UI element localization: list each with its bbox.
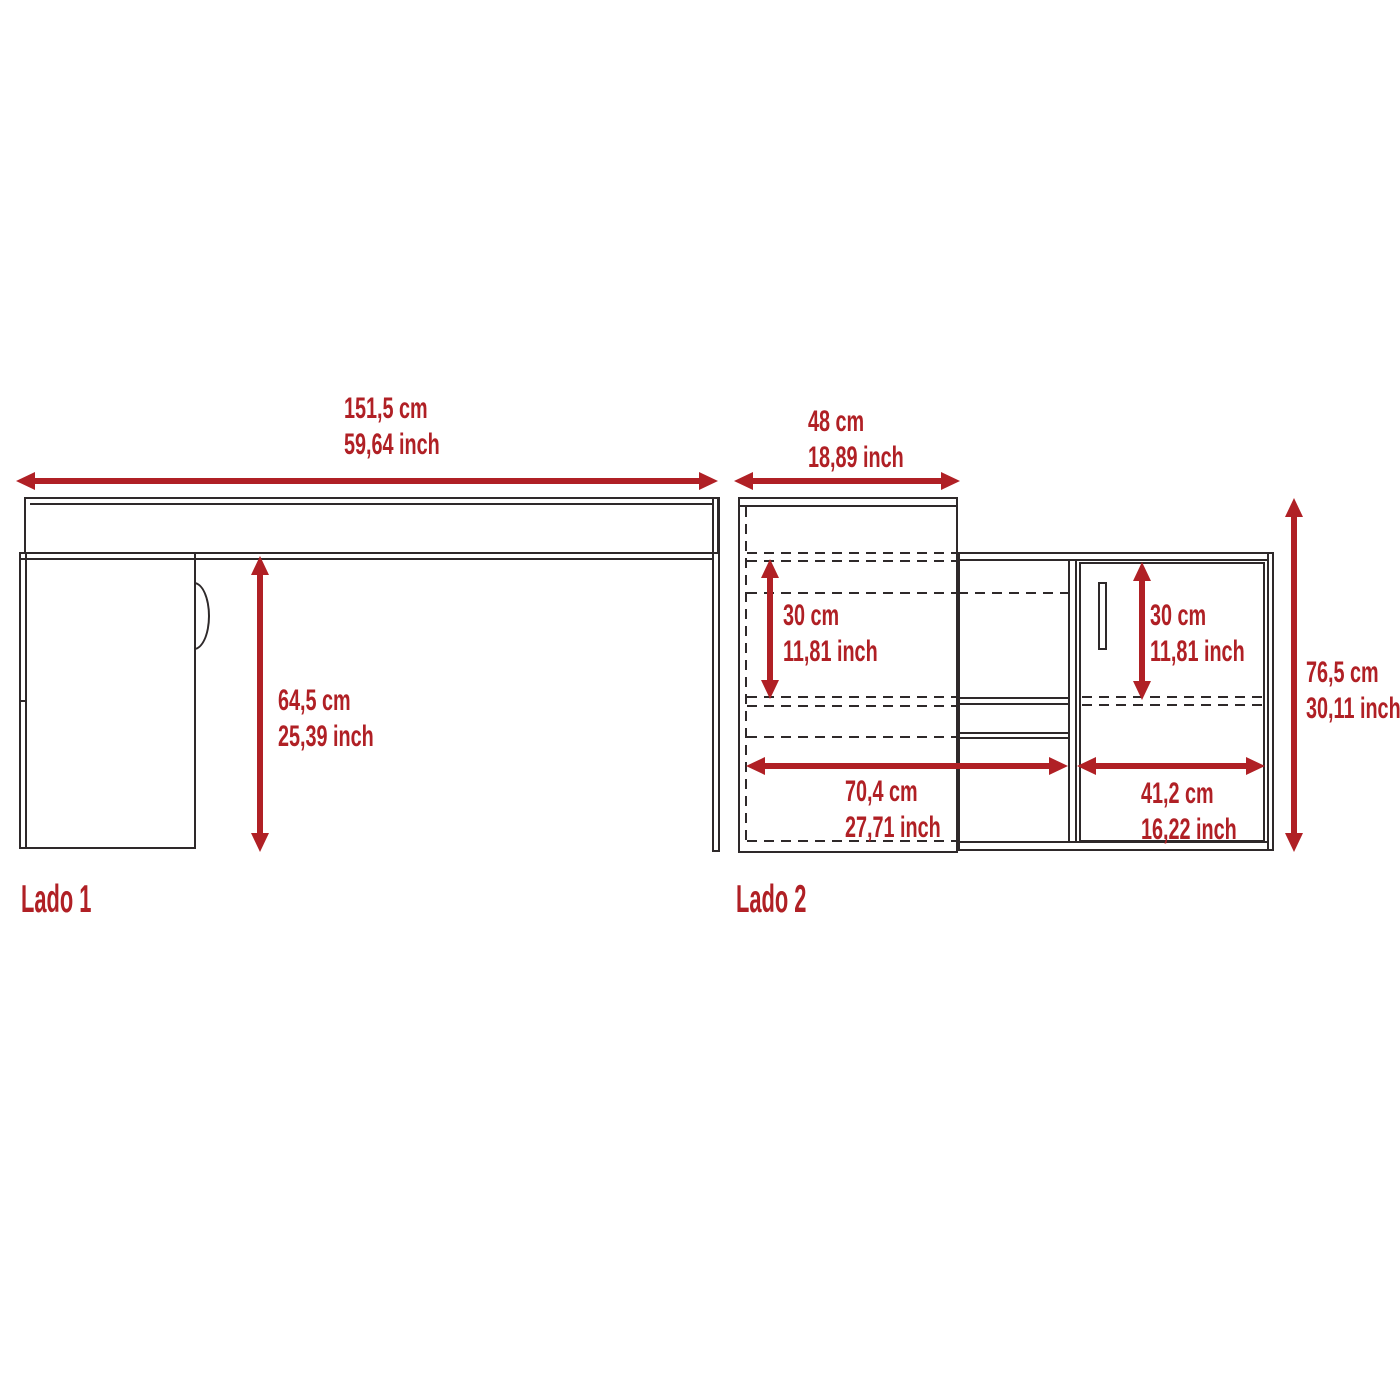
hidden-edge-dashed-vertical bbox=[745, 507, 747, 843]
desk-side-panel bbox=[712, 497, 720, 852]
dim-value-inch: 27,71 inch bbox=[845, 810, 941, 846]
dim-label-lado2-door-height: 30 cm 11,81 inch bbox=[1150, 598, 1245, 670]
dim-value-cm: 151,5 cm bbox=[344, 391, 440, 427]
dim-label-lado1-width: 151,5 cm 59,64 inch bbox=[344, 391, 440, 463]
divider-line-left bbox=[1068, 559, 1070, 843]
arrow-shaft bbox=[1092, 763, 1250, 769]
dim-value-inch: 11,81 inch bbox=[1150, 634, 1245, 670]
arrow-head-right bbox=[941, 472, 960, 490]
side-panel-top-line bbox=[738, 505, 958, 507]
dim-label-lado1-underdesk-height: 64,5 cm 25,39 inch bbox=[278, 683, 374, 755]
dim-value-cm: 30 cm bbox=[1150, 598, 1245, 634]
dim-value-cm: 76,5 cm bbox=[1306, 655, 1400, 691]
dim-value-cm: 64,5 cm bbox=[278, 683, 374, 719]
dim-value-inch: 25,39 inch bbox=[278, 719, 374, 755]
arrow-head-bottom bbox=[1285, 833, 1303, 852]
arrow-shaft bbox=[31, 478, 703, 484]
dim-value-inch: 30,11 inch bbox=[1306, 691, 1400, 727]
furniture-dimension-diagram: 151,5 cm 59,64 inch 64,5 cm 25,39 inch L… bbox=[0, 0, 1400, 1400]
dim-label-lado2-total-height: 76,5 cm 30,11 inch bbox=[1306, 655, 1400, 727]
view-label-lado1: Lado 1 bbox=[21, 880, 91, 920]
shelf-line-2 bbox=[958, 703, 1068, 705]
arrow-head-right bbox=[1049, 757, 1068, 775]
dim-label-lado2-open-width: 70,4 cm 27,71 inch bbox=[845, 774, 941, 846]
cabinet-right-line bbox=[1267, 554, 1269, 849]
arrow-head-right bbox=[1246, 757, 1265, 775]
arrow-head-bottom bbox=[251, 833, 269, 852]
cabinet-door-seam bbox=[19, 700, 27, 702]
dim-arrow-lado2-left-shelf-height bbox=[761, 559, 779, 699]
arrow-head-right bbox=[699, 472, 718, 490]
dim-label-lado2-door-width: 41,2 cm 16,22 inch bbox=[1141, 776, 1237, 848]
dim-value-cm: 48 cm bbox=[808, 404, 904, 440]
dim-arrow-lado2-open-width bbox=[746, 757, 1068, 775]
view-label-lado2: Lado 2 bbox=[736, 880, 806, 920]
arrow-shaft bbox=[749, 478, 945, 484]
shelf-line-1 bbox=[958, 697, 1068, 699]
arrow-head-bottom bbox=[761, 680, 779, 699]
cabinet-top-line bbox=[958, 559, 1269, 561]
dim-value-inch: 11,81 inch bbox=[783, 634, 878, 670]
arrow-shaft bbox=[761, 763, 1053, 769]
shelf-line-3 bbox=[958, 732, 1068, 734]
desk-top-edge-line bbox=[30, 503, 712, 505]
dim-value-cm: 70,4 cm bbox=[845, 774, 941, 810]
door-hidden-shelf-dashed-1 bbox=[1082, 696, 1262, 698]
dim-arrow-lado2-door-width bbox=[1077, 757, 1265, 775]
dim-arrow-lado1-width bbox=[16, 472, 718, 490]
arrow-head-bottom bbox=[1133, 681, 1151, 700]
dim-value-inch: 18,89 inch bbox=[808, 440, 904, 476]
divider-line-right bbox=[1075, 559, 1077, 843]
open-shelf-hidden-dashed-line bbox=[958, 592, 1068, 594]
arrow-shaft bbox=[257, 571, 263, 837]
dim-label-lado2-left-shelf-height: 30 cm 11,81 inch bbox=[783, 598, 878, 670]
shelf-line-4 bbox=[958, 737, 1068, 739]
dim-arrow-lado1-underdesk-height bbox=[251, 556, 269, 852]
door-handle-arc bbox=[194, 582, 210, 650]
hidden-edge-dashed-6 bbox=[747, 736, 956, 738]
dim-label-lado2-depth: 48 cm 18,89 inch bbox=[808, 404, 904, 476]
dim-arrow-lado2-door-height bbox=[1133, 562, 1151, 700]
arrow-shaft bbox=[767, 574, 773, 684]
storage-cabinet bbox=[19, 552, 196, 849]
arrow-shaft bbox=[1291, 513, 1297, 837]
door-hidden-shelf-dashed-2 bbox=[1082, 704, 1262, 706]
dim-value-cm: 41,2 cm bbox=[1141, 776, 1237, 812]
dim-arrow-lado2-total-height bbox=[1285, 498, 1303, 852]
dim-value-inch: 16,22 inch bbox=[1141, 812, 1237, 848]
arrow-shaft bbox=[1139, 577, 1145, 685]
hidden-edge-dashed-1 bbox=[747, 552, 956, 554]
hidden-edge-dashed-5 bbox=[747, 705, 956, 707]
door-handle bbox=[1098, 582, 1107, 650]
dim-value-inch: 59,64 inch bbox=[344, 427, 440, 463]
dim-value-cm: 30 cm bbox=[783, 598, 878, 634]
desk-top-panel bbox=[24, 497, 719, 554]
